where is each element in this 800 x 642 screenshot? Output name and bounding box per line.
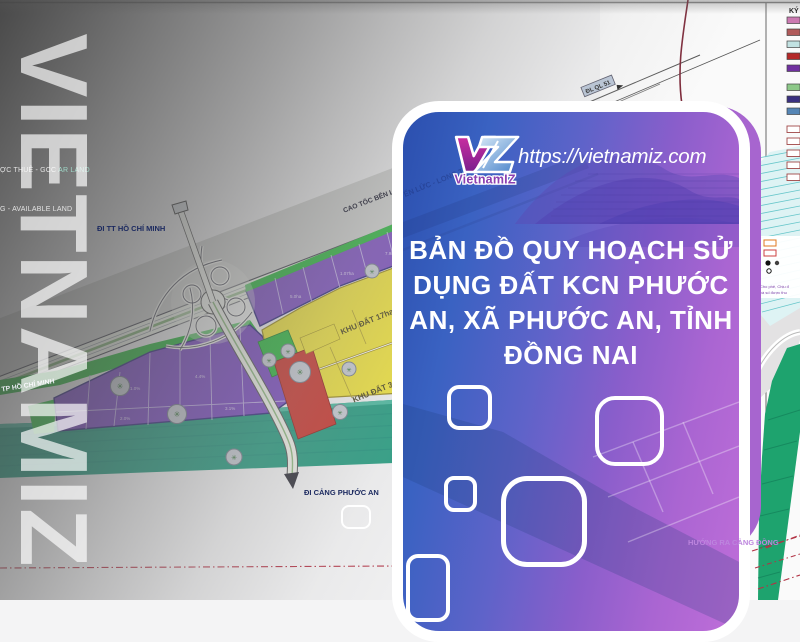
svg-text:ĐI CẢNG PHƯỚC AN: ĐI CẢNG PHƯỚC AN — [304, 488, 379, 497]
svg-text:VietnamIZ: VietnamIZ — [454, 173, 515, 187]
svg-text:ĐI TT HỒ CHÍ MINH: ĐI TT HỒ CHÍ MINH — [97, 223, 165, 233]
